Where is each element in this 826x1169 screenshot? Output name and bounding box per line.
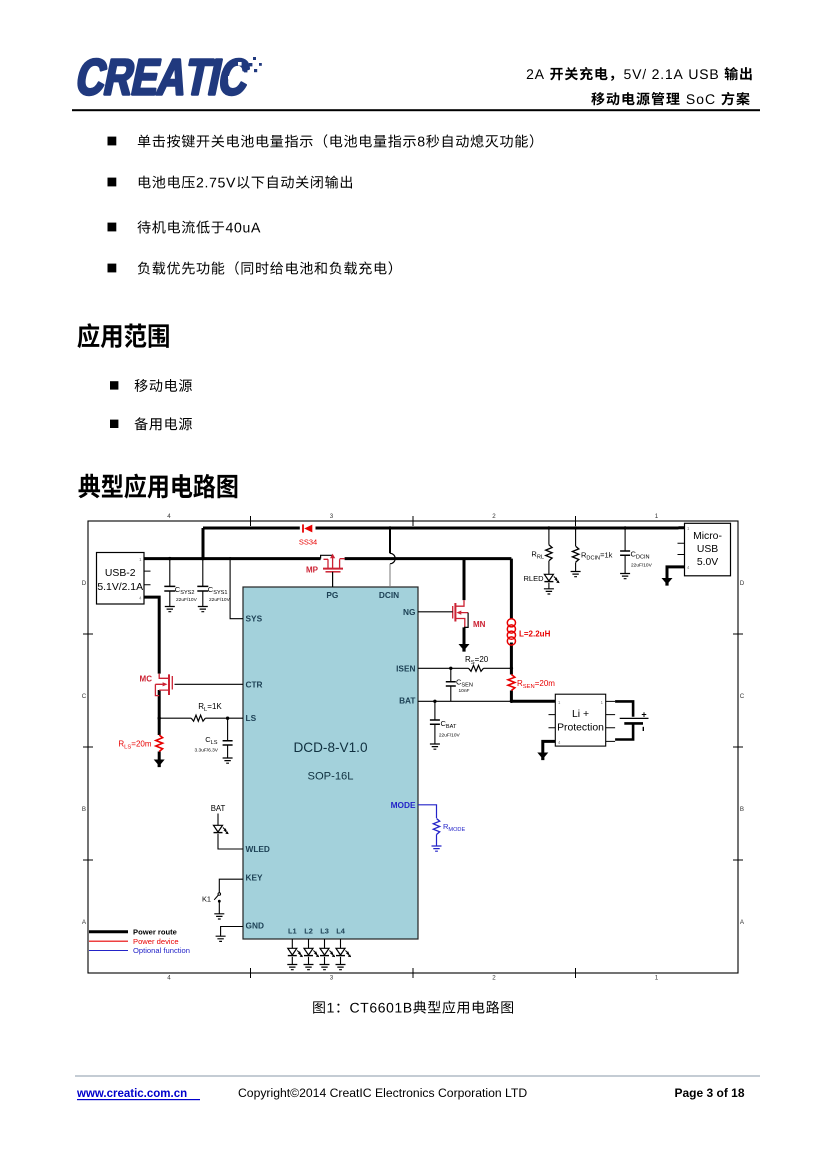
- svg-text:GND: GND: [246, 920, 264, 930]
- svg-text:DCD-8-V1.0: DCD-8-V1.0: [293, 740, 367, 755]
- svg-text:SOP-16L: SOP-16L: [307, 771, 353, 783]
- svg-text:B: B: [740, 806, 744, 813]
- svg-text:BAT: BAT: [211, 804, 226, 813]
- svg-text:Optional function: Optional function: [133, 946, 190, 955]
- svg-text:USB-2: USB-2: [105, 568, 136, 579]
- svg-text:Protection: Protection: [557, 723, 604, 734]
- svg-text:1: 1: [655, 975, 659, 982]
- svg-text:CSYS2: CSYS2: [175, 585, 195, 596]
- svg-text:WLED: WLED: [246, 844, 270, 854]
- svg-text:CBAT: CBAT: [441, 719, 457, 730]
- svg-text:+: +: [641, 710, 646, 720]
- svg-text:K1: K1: [202, 894, 211, 903]
- svg-text:Power device: Power device: [133, 937, 179, 946]
- svg-text:L4: L4: [336, 927, 346, 936]
- svg-text:USB: USB: [697, 544, 718, 555]
- svg-text:LS: LS: [246, 713, 257, 723]
- svg-text:KEY: KEY: [246, 872, 264, 882]
- svg-text:PG: PG: [326, 590, 338, 600]
- svg-text:CLS: CLS: [205, 735, 218, 746]
- svg-text:L3: L3: [320, 927, 329, 936]
- svg-text:22uF/10V: 22uF/10V: [439, 733, 461, 739]
- svg-text:22uF/10V: 22uF/10V: [176, 597, 198, 603]
- svg-text:RRL: RRL: [531, 550, 544, 561]
- svg-text:Page 3 of 18: Page 3 of 18: [674, 1086, 744, 1100]
- svg-text:4: 4: [167, 513, 171, 520]
- svg-text:MN: MN: [473, 620, 486, 629]
- svg-text:L2: L2: [304, 927, 313, 936]
- svg-text:RMODE: RMODE: [443, 822, 465, 833]
- svg-text:Li +: Li +: [572, 709, 589, 720]
- svg-text:CDCIN: CDCIN: [631, 550, 650, 561]
- svg-text:2: 2: [492, 513, 496, 520]
- svg-text:L=2.2uH: L=2.2uH: [519, 630, 551, 639]
- svg-text:RLED: RLED: [523, 574, 544, 583]
- svg-text:D: D: [740, 580, 745, 587]
- svg-text:Micro-: Micro-: [693, 531, 722, 542]
- svg-text:RSEN=20m: RSEN=20m: [517, 679, 555, 690]
- svg-text:CSEN: CSEN: [456, 678, 473, 689]
- svg-text:Power route: Power route: [133, 928, 177, 937]
- svg-text:4: 4: [167, 975, 171, 982]
- svg-text:1: 1: [655, 513, 659, 520]
- svg-text:CSYS1: CSYS1: [208, 585, 228, 596]
- svg-text:RLS=20m: RLS=20m: [118, 740, 151, 751]
- svg-text:RDCIN=1k: RDCIN=1k: [581, 551, 613, 562]
- svg-text:MODE: MODE: [391, 800, 416, 810]
- svg-text:A: A: [82, 919, 87, 926]
- svg-text:3: 3: [330, 513, 334, 520]
- svg-text:ISEN: ISEN: [396, 663, 415, 673]
- svg-text:A: A: [740, 919, 745, 926]
- svg-text:Copyright©2014 CreatIC Electro: Copyright©2014 CreatIC Electronics Corpo…: [238, 1086, 527, 1100]
- svg-text:10nF: 10nF: [459, 688, 470, 694]
- svg-text:BAT: BAT: [399, 696, 415, 706]
- svg-text:22uF/10V: 22uF/10V: [209, 597, 231, 603]
- svg-text:5.1V/2.1A: 5.1V/2.1A: [97, 582, 143, 593]
- svg-text:RS=20: RS=20: [465, 655, 489, 666]
- svg-text:MC: MC: [140, 675, 153, 684]
- svg-text:3.3uF/6.3V: 3.3uF/6.3V: [195, 748, 219, 754]
- svg-text:NG: NG: [403, 607, 415, 617]
- svg-text:www.creatic.com.cn: www.creatic.com.cn: [76, 1088, 187, 1100]
- svg-text:L1: L1: [288, 927, 297, 936]
- svg-text:D: D: [82, 580, 87, 587]
- svg-text:SS34: SS34: [299, 538, 317, 547]
- svg-text:B: B: [82, 806, 86, 813]
- svg-text:DCIN: DCIN: [379, 590, 399, 600]
- svg-text:2: 2: [492, 975, 496, 982]
- svg-text:5.0V: 5.0V: [697, 557, 718, 568]
- svg-text:CTR: CTR: [246, 679, 263, 689]
- svg-text:22uF/10V: 22uF/10V: [631, 563, 653, 569]
- svg-text:MP: MP: [306, 566, 319, 575]
- svg-text:C: C: [82, 693, 87, 700]
- svg-text:3: 3: [330, 975, 334, 982]
- svg-text:SYS: SYS: [246, 613, 263, 623]
- svg-text:RL=1K: RL=1K: [198, 702, 222, 713]
- svg-text:C: C: [740, 693, 745, 700]
